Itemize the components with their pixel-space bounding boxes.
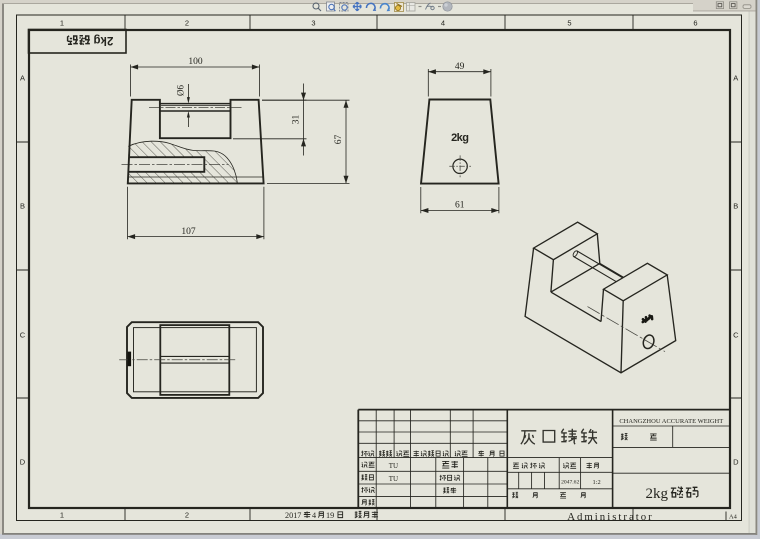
svg-text:100: 100 [188,57,203,67]
svg-text:49: 49 [455,62,465,72]
svg-text:3: 3 [311,18,315,27]
svg-text:4: 4 [441,18,445,27]
svg-text:D: D [20,458,26,467]
svg-text:A: A [733,74,738,83]
svg-text:2kg: 2kg [451,132,468,144]
svg-text:2: 2 [185,510,189,519]
svg-text:31: 31 [291,115,301,125]
svg-text:CHANGZHOU ACCURATE WEIGHT: CHANGZHOU ACCURATE WEIGHT [619,418,723,425]
svg-text:C: C [20,331,26,340]
svg-text:2047.62: 2047.62 [561,480,579,486]
svg-text:B: B [20,202,25,211]
svg-text:6: 6 [693,18,697,27]
svg-text:C: C [733,331,739,340]
svg-text:5: 5 [567,18,571,27]
svg-text:A: A [20,74,25,83]
svg-text:2kg: 2kg [94,34,114,46]
svg-text:2kg: 2kg [646,486,669,502]
svg-text:61: 61 [455,201,465,211]
svg-text:107: 107 [181,227,196,237]
svg-text:67: 67 [334,135,344,145]
svg-text:TU: TU [389,475,398,483]
svg-text:1: 1 [60,510,64,519]
svg-text:2: 2 [185,18,189,27]
svg-text:4: 4 [312,511,316,520]
svg-text:2017: 2017 [285,511,301,520]
svg-text:1:2: 1:2 [593,479,601,486]
svg-text:Ø6: Ø6 [175,85,185,96]
svg-text:B: B [733,202,738,211]
svg-text:Administrator: Administrator [567,511,654,523]
svg-text:TU: TU [389,462,398,470]
svg-text:D: D [733,458,739,467]
svg-text:19: 19 [326,511,334,520]
svg-text:1: 1 [60,18,64,27]
svg-text:A4: A4 [729,514,738,521]
